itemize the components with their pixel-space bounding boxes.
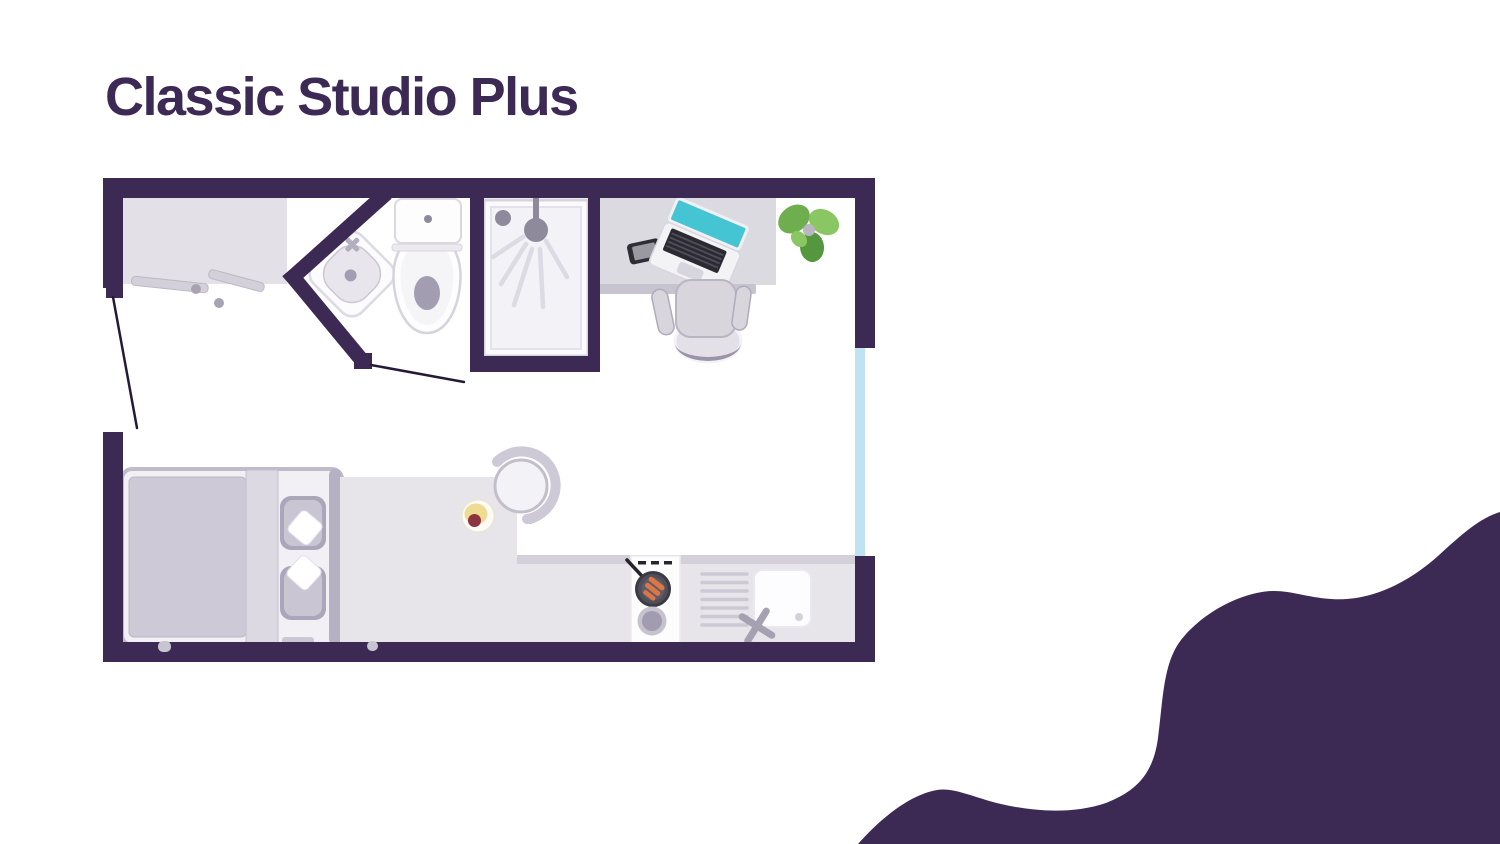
wall-bottom (103, 642, 875, 662)
hob-control (638, 561, 646, 565)
office-chair (650, 280, 752, 362)
wall-right-upper (855, 178, 875, 348)
sink-drain (795, 613, 803, 621)
shower (484, 196, 588, 356)
hob-control (651, 561, 659, 565)
food-meat (468, 514, 481, 527)
shower-drain (495, 210, 511, 226)
bed (122, 469, 342, 645)
plate-of-food (462, 500, 495, 533)
counter-foot (367, 641, 378, 651)
wall-left-lower (103, 432, 123, 662)
wall-shower-bottom (470, 356, 600, 372)
dining-chair-seat (495, 460, 547, 512)
wall-right-lower (855, 556, 875, 662)
wardrobe-body (122, 198, 287, 284)
bed-duvet-fold (246, 470, 278, 644)
office-chair-armrest (650, 288, 675, 336)
entrance-door (113, 297, 137, 428)
wall-top (103, 178, 875, 198)
bed-foot (158, 641, 171, 652)
bathroom-door (371, 365, 464, 382)
toilet-drain (414, 276, 440, 310)
hob-control (664, 561, 672, 565)
toilet-flush-button (424, 215, 432, 223)
wardrobe (122, 198, 287, 308)
window (855, 348, 865, 556)
page-background: Classic Studio Plus (0, 0, 1500, 844)
toilet-seat-hinge (392, 244, 462, 251)
floor-plan-illustration (0, 0, 1500, 844)
saucepan (638, 607, 667, 636)
wardrobe-door-handle (214, 298, 224, 308)
wall-left-upper (103, 178, 123, 288)
wall-bathroom-right (588, 196, 600, 372)
office-chair-seat (676, 280, 736, 337)
hob (627, 556, 680, 644)
wall-left-stub (106, 288, 123, 298)
bed-duvet (129, 477, 246, 637)
counter-edge (517, 555, 860, 564)
wardrobe-door-handle (191, 284, 201, 294)
shower-head (524, 218, 548, 242)
plant (773, 199, 844, 263)
bed-headboard (329, 469, 341, 645)
toilet (392, 199, 462, 333)
plant-pot (803, 224, 815, 236)
wall-shower-left (470, 196, 484, 362)
wall-bathroom-stub (354, 353, 372, 369)
decorative-wave-shape (858, 512, 1500, 844)
